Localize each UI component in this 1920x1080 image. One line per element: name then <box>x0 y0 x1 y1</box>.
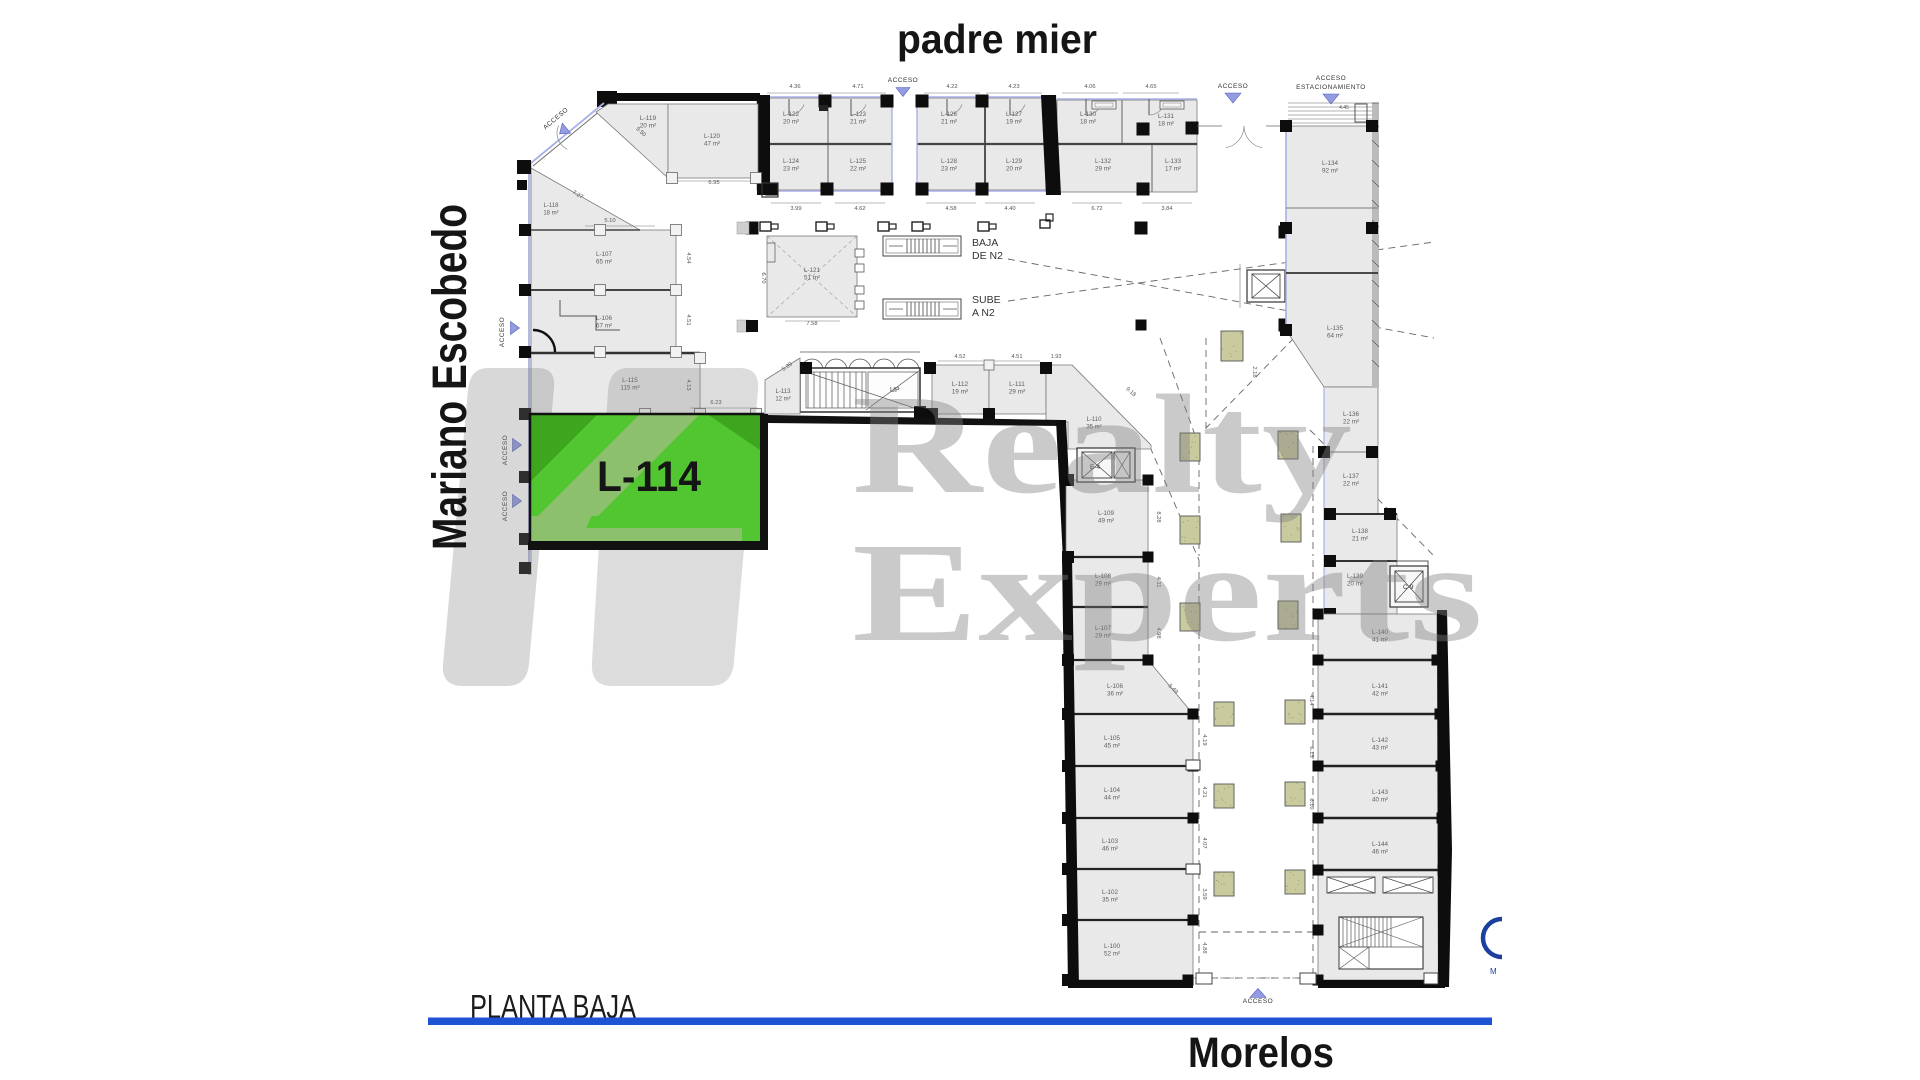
svg-text:L-131: L-131 <box>1158 113 1175 120</box>
svg-text:6.72: 6.72 <box>1091 206 1102 212</box>
svg-text:ACCESO: ACCESO <box>1316 75 1346 82</box>
svg-text:42 m²: 42 m² <box>1372 691 1388 698</box>
svg-text:20 m²: 20 m² <box>1006 166 1022 173</box>
svg-text:4.07: 4.07 <box>1201 837 1207 848</box>
svg-text:22 m²: 22 m² <box>850 166 866 173</box>
svg-text:7.58: 7.58 <box>806 321 817 327</box>
svg-text:L-119: L-119 <box>640 115 657 122</box>
svg-text:L-121: L-121 <box>804 267 821 274</box>
svg-text:19 m²: 19 m² <box>1006 119 1022 126</box>
svg-text:Experts: Experts <box>852 513 1483 671</box>
svg-text:3.84: 3.84 <box>1161 206 1173 212</box>
svg-text:L-127: L-127 <box>1006 111 1023 118</box>
svg-text:6.13: 6.13 <box>1308 746 1314 757</box>
svg-text:L-135: L-135 <box>1327 325 1344 332</box>
svg-text:23 m²: 23 m² <box>783 166 799 173</box>
svg-text:L-100: L-100 <box>1104 943 1121 950</box>
svg-text:4.19: 4.19 <box>1201 734 1207 745</box>
svg-text:M: M <box>1490 967 1497 976</box>
svg-text:3.99: 3.99 <box>790 206 801 212</box>
svg-text:DE N2: DE N2 <box>972 250 1003 262</box>
svg-text:ACCESO: ACCESO <box>888 77 918 84</box>
svg-text:6.70: 6.70 <box>760 272 766 283</box>
svg-text:Mariano Escobedo: Mariano Escobedo <box>424 204 477 550</box>
svg-text:L-106: L-106 <box>596 315 613 322</box>
svg-text:4.65: 4.65 <box>1145 84 1156 90</box>
svg-text:44 m²: 44 m² <box>1104 795 1120 802</box>
svg-text:23 m²: 23 m² <box>941 166 957 173</box>
svg-text:L-126: L-126 <box>941 111 958 118</box>
svg-text:L-113: L-113 <box>776 389 792 395</box>
svg-text:L-134: L-134 <box>1322 160 1339 167</box>
svg-text:L-130: L-130 <box>1080 111 1097 118</box>
svg-text:18 m²: 18 m² <box>543 211 558 217</box>
svg-text:L-103: L-103 <box>1102 838 1119 845</box>
svg-text:4.88: 4.88 <box>1201 942 1207 953</box>
svg-text:L-122: L-122 <box>783 111 800 118</box>
svg-text:ACCESO: ACCESO <box>499 317 506 347</box>
svg-text:4.45: 4.45 <box>1339 105 1349 111</box>
svg-text:64 m²: 64 m² <box>1327 333 1343 340</box>
svg-text:ESTACIONAMIENTO: ESTACIONAMIENTO <box>1296 84 1366 91</box>
svg-text:BAJA: BAJA <box>972 237 998 249</box>
svg-text:4.36: 4.36 <box>789 84 800 90</box>
svg-text:3.59: 3.59 <box>1201 888 1207 899</box>
svg-text:A N2: A N2 <box>972 307 995 319</box>
svg-text:4.71: 4.71 <box>852 84 863 90</box>
svg-text:L-123: L-123 <box>850 111 867 118</box>
svg-text:4.23: 4.23 <box>1008 84 1019 90</box>
svg-text:L-125: L-125 <box>850 158 867 165</box>
svg-text:12 m²: 12 m² <box>775 397 790 403</box>
svg-text:L-143: L-143 <box>1372 789 1389 796</box>
svg-text:L-142: L-142 <box>1372 737 1389 744</box>
svg-text:4.58: 4.58 <box>945 206 956 212</box>
svg-text:46 m²: 46 m² <box>1372 849 1388 856</box>
svg-text:45 m²: 45 m² <box>1104 743 1120 750</box>
svg-text:L-132: L-132 <box>1095 158 1112 165</box>
svg-text:40 m²: 40 m² <box>1372 797 1388 804</box>
svg-text:L-105: L-105 <box>1104 735 1121 742</box>
svg-text:SUBE: SUBE <box>972 294 1001 306</box>
svg-text:L-114: L-114 <box>597 453 701 501</box>
svg-text:65 m²: 65 m² <box>596 259 612 266</box>
svg-text:20 m²: 20 m² <box>783 119 799 126</box>
svg-text:L-106: L-106 <box>1107 683 1124 690</box>
svg-text:4.21: 4.21 <box>1201 786 1207 797</box>
svg-text:L-120: L-120 <box>704 133 721 140</box>
svg-text:17 m²: 17 m² <box>1165 166 1181 173</box>
svg-text:padre mier: padre mier <box>897 16 1097 62</box>
svg-text:46 m²: 46 m² <box>1102 846 1118 853</box>
svg-text:L-141: L-141 <box>1372 683 1389 690</box>
svg-text:1.93: 1.93 <box>1051 354 1062 360</box>
svg-text:6.10: 6.10 <box>1308 798 1314 809</box>
svg-text:L-124: L-124 <box>783 158 800 165</box>
svg-text:4.51: 4.51 <box>685 314 691 325</box>
svg-text:51 m²: 51 m² <box>804 275 820 282</box>
svg-text:21 m²: 21 m² <box>941 119 957 126</box>
svg-text:Morelos: Morelos <box>1188 1029 1334 1077</box>
svg-text:L-133: L-133 <box>1165 158 1182 165</box>
svg-text:5.10: 5.10 <box>604 218 615 224</box>
svg-text:L-128: L-128 <box>941 158 958 165</box>
svg-text:Realty: Realty <box>852 365 1352 523</box>
svg-text:47 m²: 47 m² <box>704 141 720 148</box>
svg-text:L-129: L-129 <box>1006 158 1023 165</box>
svg-text:4.06: 4.06 <box>1084 84 1095 90</box>
svg-text:18 m²: 18 m² <box>1080 119 1096 126</box>
svg-text:4.51: 4.51 <box>1011 354 1022 360</box>
svg-text:ACCESO: ACCESO <box>1243 998 1273 1005</box>
svg-text:4.40: 4.40 <box>1004 206 1015 212</box>
svg-text:L-118: L-118 <box>544 203 560 209</box>
svg-text:4.22: 4.22 <box>946 84 957 90</box>
svg-text:ACCESO: ACCESO <box>1218 83 1248 90</box>
svg-text:29 m²: 29 m² <box>1095 166 1111 173</box>
svg-text:4.62: 4.62 <box>854 206 865 212</box>
svg-text:4.54: 4.54 <box>685 252 691 264</box>
svg-text:21 m²: 21 m² <box>850 119 866 126</box>
svg-text:L-102: L-102 <box>1102 889 1119 896</box>
svg-text:18 m²: 18 m² <box>1158 121 1174 128</box>
svg-text:67 m²: 67 m² <box>596 323 612 330</box>
svg-text:L-107: L-107 <box>596 251 613 258</box>
svg-text:92 m²: 92 m² <box>1322 168 1338 175</box>
svg-text:36 m²: 36 m² <box>1107 691 1123 698</box>
svg-text:4.52: 4.52 <box>954 354 965 360</box>
svg-text:L-144: L-144 <box>1372 841 1389 848</box>
svg-text:43 m²: 43 m² <box>1372 745 1388 752</box>
svg-text:4.14: 4.14 <box>1308 694 1314 706</box>
svg-text:L-104: L-104 <box>1104 787 1121 794</box>
svg-text:35 m²: 35 m² <box>1102 897 1118 904</box>
svg-text:52 m²: 52 m² <box>1104 951 1120 958</box>
